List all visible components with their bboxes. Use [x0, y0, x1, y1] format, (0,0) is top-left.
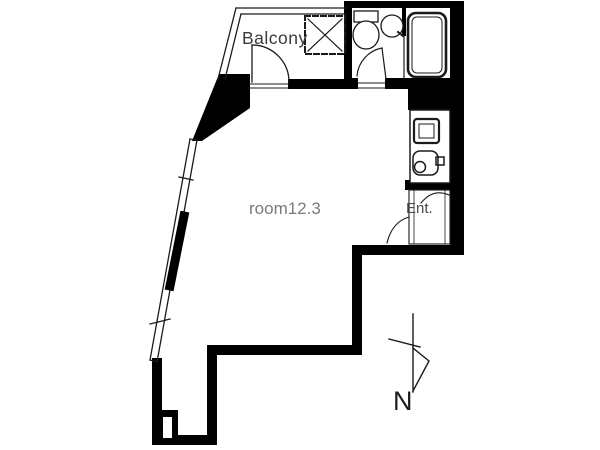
main-room-area — [220, 95, 350, 340]
toilet-icon — [353, 11, 379, 49]
entrance-label: Ent. — [406, 200, 433, 217]
kitchen-unit — [410, 110, 450, 183]
floorplan-svg: Balcony room12.3 Ent. N — [0, 0, 600, 450]
wash-basin-icon — [381, 15, 403, 37]
north-label: N — [393, 386, 413, 416]
bathtub-icon — [408, 13, 446, 77]
corner-slot — [163, 417, 172, 438]
floorplan-canvas: Balcony room12.3 Ent. N — [0, 0, 600, 450]
balcony-area — [245, 15, 345, 78]
